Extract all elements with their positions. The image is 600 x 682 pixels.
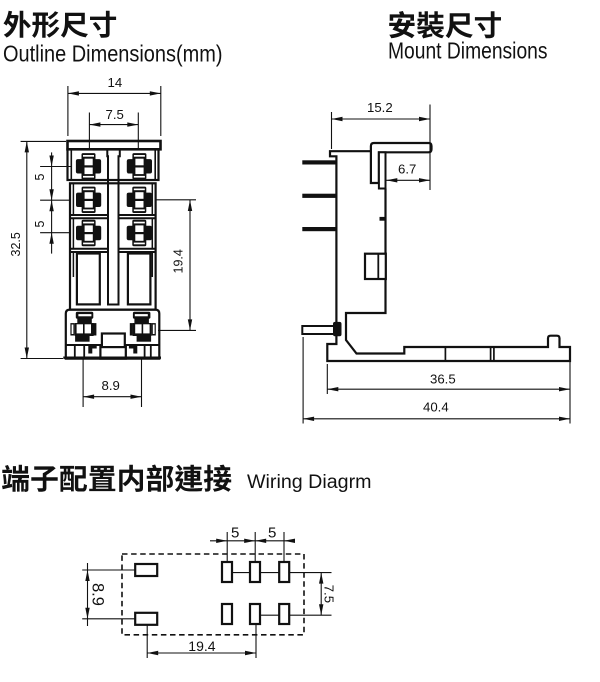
- svg-text:8.9: 8.9: [88, 583, 106, 606]
- svg-text:40.4: 40.4: [423, 400, 449, 415]
- svg-text:8.9: 8.9: [102, 378, 120, 393]
- svg-text:Outline Dimensions(mm): Outline Dimensions(mm): [3, 41, 223, 67]
- svg-text:6.7: 6.7: [398, 162, 416, 177]
- svg-text:7.5: 7.5: [322, 585, 337, 603]
- svg-text:32.5: 32.5: [9, 232, 23, 256]
- svg-text:5: 5: [33, 174, 47, 181]
- svg-text:15.2: 15.2: [367, 100, 393, 115]
- svg-text:7.5: 7.5: [106, 107, 124, 122]
- svg-text:Wiring Diagrm: Wiring Diagrm: [247, 472, 372, 493]
- svg-text:5: 5: [231, 525, 239, 542]
- svg-text:14: 14: [108, 75, 123, 90]
- svg-text:19.4: 19.4: [188, 638, 215, 654]
- svg-text:5: 5: [268, 525, 276, 542]
- svg-text:19.4: 19.4: [172, 249, 186, 273]
- svg-text:5: 5: [33, 221, 47, 228]
- svg-text:36.5: 36.5: [430, 372, 456, 387]
- svg-text:Mount Dimensions: Mount Dimensions: [388, 38, 548, 64]
